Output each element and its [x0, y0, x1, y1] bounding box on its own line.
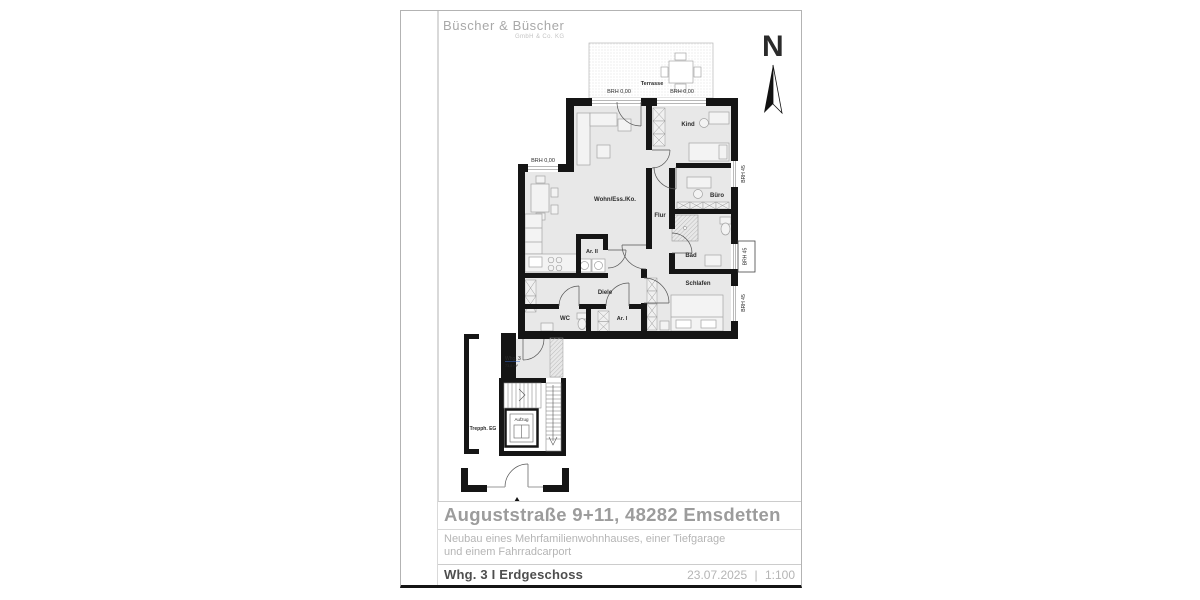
coffee-table: [597, 145, 610, 158]
shaft-hatch: [550, 338, 563, 377]
terrace-chair: [694, 67, 701, 77]
office-desk: [687, 177, 711, 188]
kitchen-tall-units: [525, 214, 542, 254]
room-label-ar2: Ar. II: [586, 249, 598, 255]
room-label-schlafen: Schlafen: [685, 281, 710, 287]
pillow: [701, 320, 716, 328]
chair: [551, 205, 558, 214]
north-needle-dark: [764, 65, 773, 113]
company-logo: Büscher & Büscher GmbH & Co. KG: [443, 19, 564, 40]
office-chair: [694, 190, 703, 199]
nightstand: [660, 321, 669, 330]
wc-tank: [577, 313, 587, 319]
kid-desk: [709, 112, 729, 124]
room-label-bad: Bad: [685, 253, 697, 259]
window-label-brh000-right: BRH 0,00: [670, 89, 694, 95]
room-label-diele: Diele: [598, 290, 613, 296]
terrace: Terrasse BRH 0,00 BRH 0,00: [589, 43, 713, 98]
armchair: [618, 119, 631, 131]
project-description-line2: und einem Fahrradcarport: [444, 546, 795, 560]
elevator: Aufzug: [506, 410, 538, 447]
north-arrow: N: [762, 30, 784, 113]
unit-label: Whg. 3 I Erdgeschoss: [444, 567, 583, 582]
window-label-brh000-wohn: BRH 0,00: [531, 158, 555, 164]
plan-sheet: N Terrasse BRH 0,00 BRH 0,00: [400, 10, 802, 588]
room-label-trepphaus: Trepph. EG: [470, 426, 497, 432]
project-address: Auguststraße 9+11, 48282 Emsdetten: [438, 501, 801, 529]
room-label-aufzug: Aufzug: [514, 417, 529, 422]
project-description: Neubau eines Mehrfamilienwohnhauses, ein…: [438, 529, 801, 565]
terrace-chair: [661, 67, 668, 77]
north-needle-light: [773, 65, 782, 113]
chair: [551, 188, 558, 197]
room-label-buero: Büro: [710, 193, 724, 199]
room-label-wc: WC: [560, 316, 571, 322]
plan-date: 23.07.2025: [687, 568, 747, 582]
plan-scale: 1:100: [765, 568, 795, 582]
window-label-brh45-schlafen: BRH 45: [741, 294, 747, 312]
title-block: Auguststraße 9+11, 48282 Emsdetten Neuba…: [438, 501, 801, 586]
floor-plan-svg: N Terrasse BRH 0,00 BRH 0,00: [401, 11, 801, 585]
terrace-chair: [675, 53, 686, 60]
room-label-terrasse: Terrasse: [641, 81, 664, 87]
shower-drain: [684, 227, 687, 230]
sofa: [577, 113, 590, 165]
chair: [536, 176, 545, 183]
window-label-brh45-buero: BRH 45: [741, 165, 747, 183]
apartment-tag-area: 73,8 m²: [505, 364, 519, 368]
title-block-bottom-row: Whg. 3 I Erdgeschoss 23.07.2025 | 1:100: [438, 564, 801, 585]
kid-chair: [700, 119, 709, 128]
pillow: [676, 320, 691, 328]
company-legal-form: GmbH & Co. KG: [443, 34, 564, 40]
page: N Terrasse BRH 0,00 BRH 0,00: [0, 0, 1200, 600]
date-scale: 23.07.2025 | 1:100: [683, 568, 795, 582]
dryer: [592, 259, 605, 272]
dining-table: [531, 184, 549, 212]
window-label-brh000-left: BRH 0,00: [607, 89, 631, 95]
room-label-kind: Kind: [681, 122, 695, 128]
wc-toilet: [578, 319, 586, 330]
window-label-brh45-bad: BRH 45: [743, 248, 749, 266]
date-scale-separator: |: [755, 568, 758, 582]
bath-sink: [705, 255, 721, 266]
kitchen-sink: [529, 257, 542, 267]
wc-sink: [541, 323, 553, 331]
room-label-ar1: Ar. I: [617, 316, 628, 322]
toilet: [721, 223, 730, 235]
sofa: [590, 113, 617, 126]
north-label: N: [762, 30, 784, 63]
project-description-line1: Neubau eines Mehrfamilienwohnhauses, ein…: [444, 533, 795, 547]
kid-pillow: [719, 145, 727, 159]
terrace-table: [669, 61, 693, 83]
room-label-wohn: Wohn/Ess./Ko.: [594, 197, 636, 203]
room-label-flur: Flur: [654, 213, 666, 219]
apartment-tag-id: Whg. 3: [505, 356, 521, 362]
company-name: Büscher & Büscher: [443, 19, 564, 32]
